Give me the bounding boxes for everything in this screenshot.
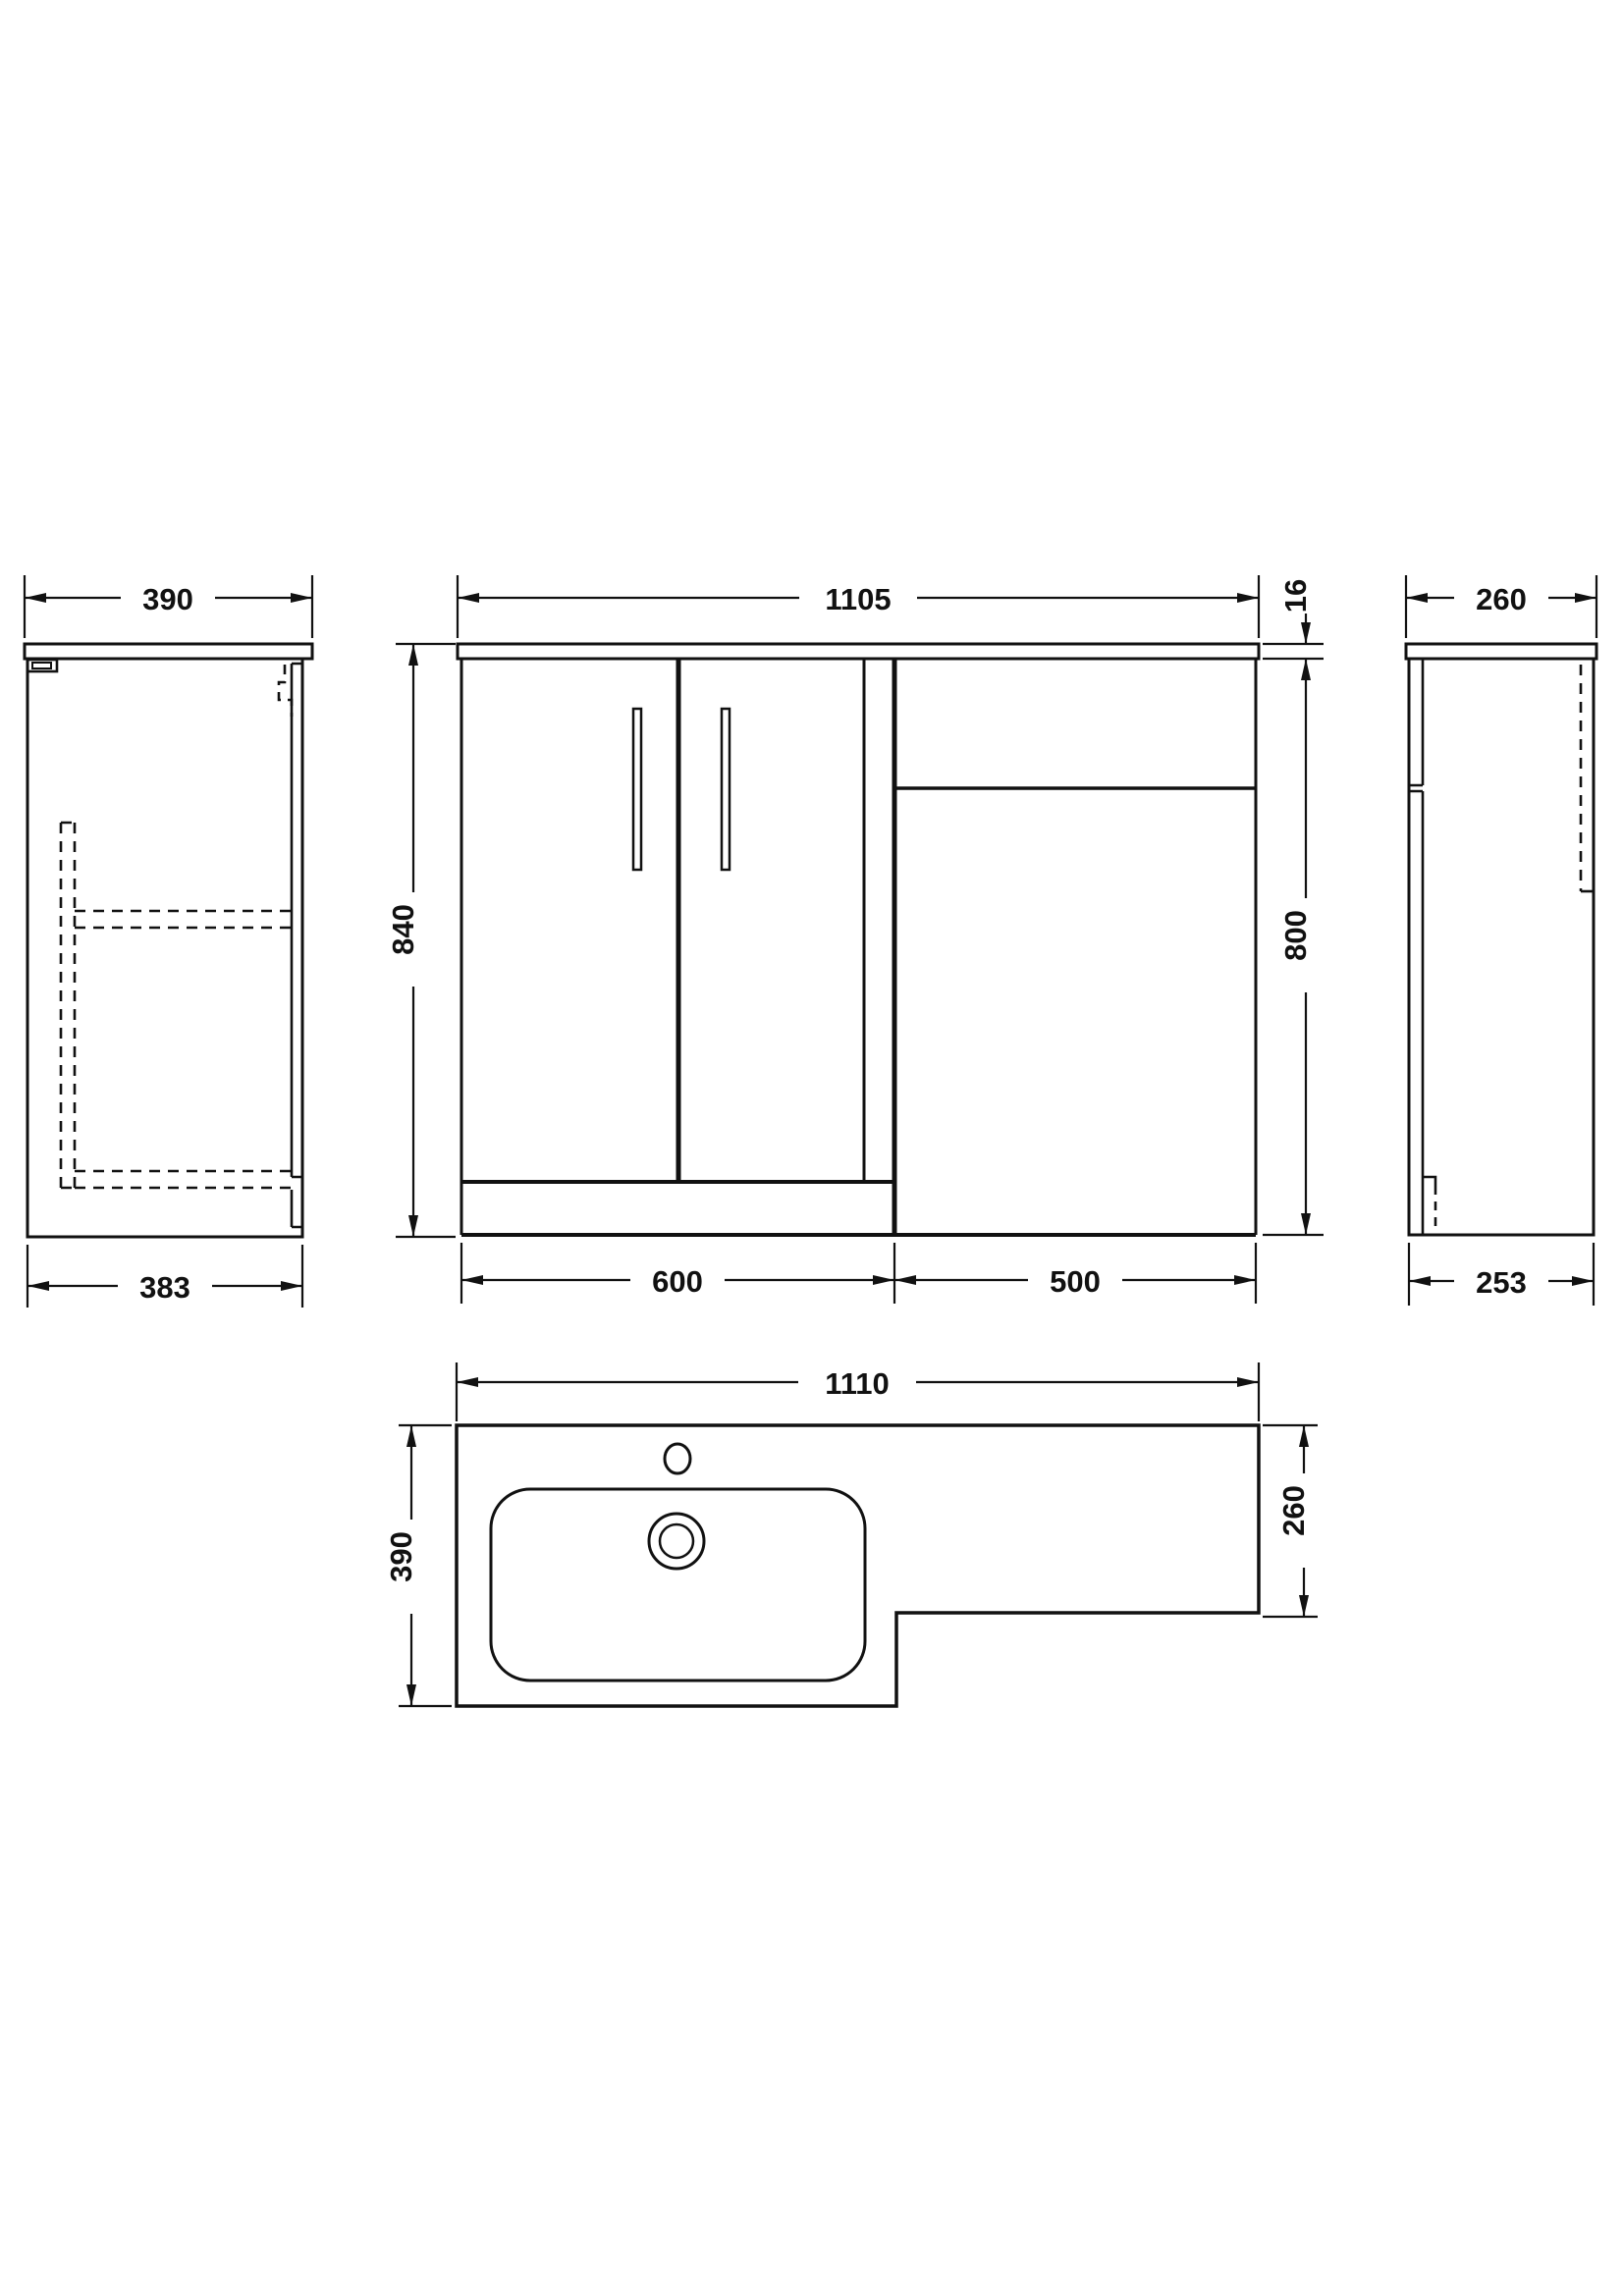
plan-basin-bowl	[491, 1489, 865, 1681]
dim-label-cabinet-height: 800	[1278, 910, 1313, 961]
plan-view: 1110 390 260	[384, 1362, 1321, 1706]
right-view-worktop	[1406, 644, 1596, 659]
front-view-worktop	[458, 644, 1259, 659]
technical-drawing-page: 390 383 1105	[0, 0, 1623, 2296]
dim-label-plan-depth: 390	[384, 1531, 418, 1582]
front-view-dim-500: 500	[894, 1243, 1256, 1304]
front-view-dim-1105: 1105	[458, 575, 1259, 638]
dim-label-plan-width: 1110	[825, 1366, 890, 1401]
dim-label-worktop-width: 1105	[825, 582, 891, 616]
front-view-dim-16: 16	[1263, 579, 1324, 659]
extension-lines	[1263, 644, 1324, 659]
front-view-dim-800: 800	[1263, 659, 1324, 1235]
left-view-dim-390: 390	[25, 575, 312, 638]
vanity-unit-technical-drawing: 390 383 1105	[0, 0, 1623, 2296]
left-view-hidden-shelf-upper	[75, 911, 292, 928]
dim-label-left-depth-bottom: 383	[139, 1270, 190, 1305]
right-view-carcass-outline	[1409, 659, 1594, 1235]
left-view-hidden-hinge	[279, 665, 292, 717]
left-view-carcass-outline	[27, 659, 302, 1237]
plan-tap-hole	[665, 1444, 690, 1473]
dim-label-left-depth-top: 390	[142, 582, 193, 616]
right-view-dim-260: 260	[1406, 575, 1596, 638]
left-view-dim-383: 383	[27, 1245, 302, 1308]
front-view: 1105 16 800 840 600	[386, 575, 1324, 1304]
plan-waste-inner	[660, 1524, 693, 1558]
right-view-dim-253: 253	[1409, 1243, 1594, 1306]
dim-label-vanity-width: 600	[652, 1264, 703, 1299]
dim-label-total-height: 840	[386, 904, 420, 955]
front-view-right-door-handle	[722, 709, 730, 870]
left-view-hidden-shelf-lower	[75, 1171, 292, 1188]
front-view-dim-840: 840	[386, 644, 456, 1237]
right-view-front-panel-edge	[1409, 659, 1423, 1235]
plan-waste-outer	[649, 1514, 704, 1569]
left-view-worktop	[25, 644, 312, 659]
plan-dim-390: 390	[384, 1425, 452, 1706]
dim-label-right-depth-bottom: 253	[1476, 1265, 1527, 1300]
left-side-view: 390 383	[25, 575, 312, 1308]
right-side-view: 260 253	[1406, 575, 1596, 1306]
dim-label-worktop-thickness: 16	[1278, 579, 1313, 613]
front-view-left-door-handle	[633, 709, 641, 870]
dim-label-right-depth-top: 260	[1476, 582, 1527, 616]
dim-label-plan-wc-depth: 260	[1276, 1485, 1311, 1536]
front-view-dim-600: 600	[461, 1243, 894, 1304]
plan-dim-1110: 1110	[457, 1362, 1259, 1421]
left-view-hidden-upright	[61, 823, 75, 1188]
plan-dim-260: 260	[1263, 1425, 1321, 1617]
left-view-bracket-inner	[32, 663, 51, 668]
dim-label-wc-unit-width: 500	[1050, 1264, 1101, 1299]
right-view-plinth-step	[1423, 1177, 1435, 1186]
left-view-door-edge	[292, 664, 302, 1227]
